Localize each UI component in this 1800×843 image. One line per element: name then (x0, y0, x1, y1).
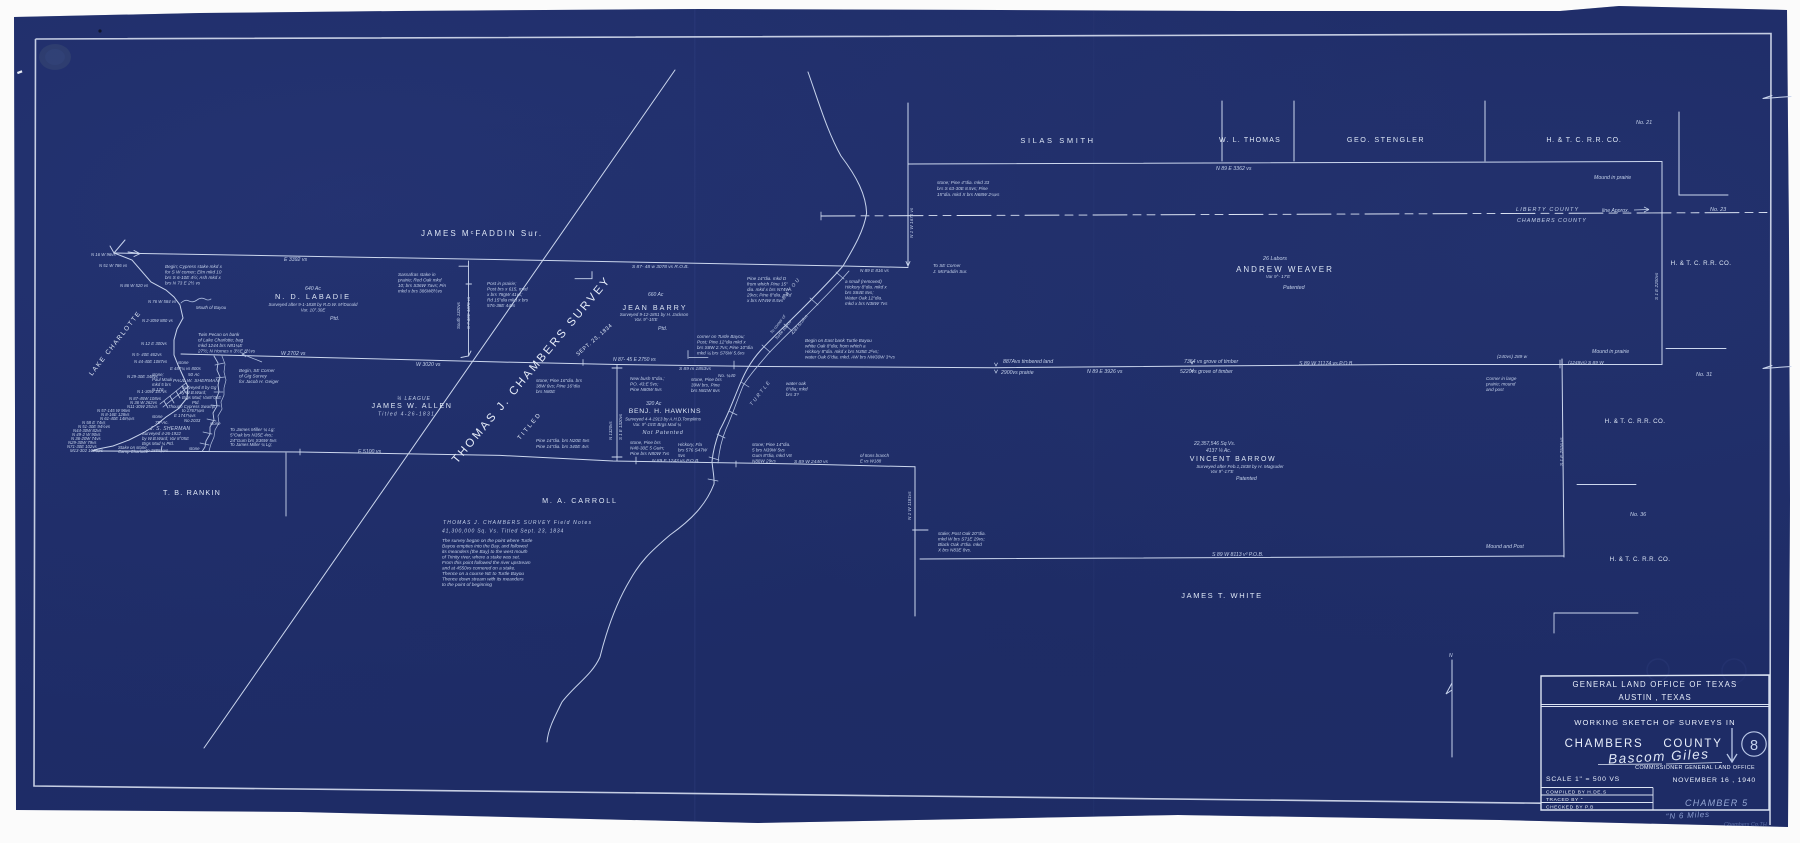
svg-text:N 76 W 584 vs: N 76 W 584 vs (148, 299, 177, 304)
svg-text:N 16 W 96vs: N 16 W 96vs (91, 252, 116, 257)
svg-text:N 86 W 520 vs: N 86 W 520 vs (120, 283, 149, 288)
svg-text:NOVEMBER 16 , 1940: NOVEMBER 16 , 1940 (1672, 777, 1756, 784)
svg-text:mkd x brs 386W8½vs: mkd x brs 386W8½vs (398, 288, 443, 294)
svg-text:41,300,000 Sq. Vs. Titled: 41,300,000 Sq. Vs. Titled Sept. 23, 1834 (442, 529, 564, 535)
svg-text:4137 ¼ Ac.: 4137 ¼ Ac. (1206, 448, 1231, 454)
svg-text:THOMAS J. CHAMBERS SURVEY: THOMAS J. CHAMBERS SURVEY Field Notes (443, 520, 592, 526)
svg-text:X brs N83E 8vs.: X brs N83E 8vs. (937, 548, 971, 553)
svg-text:CHAMBERS COUNTY: CHAMBERS COUNTY (1517, 218, 1587, 224)
svg-text:CHAMBERS: CHAMBERS (1565, 738, 1644, 750)
svg-text:M. A. CARROLL: M. A. CARROLL (542, 496, 618, 505)
svg-text:South 1320vs: South 1320vs (456, 301, 461, 329)
svg-text:of Lake Charlotte; bag: of Lake Charlotte; bag (198, 338, 244, 343)
svg-text:Twin Pecan on bank: Twin Pecan on bank (198, 332, 240, 337)
svg-text:W. L. THOMAS: W. L. THOMAS (1219, 137, 1281, 144)
svg-text:brs S 6-10E 4½; Ash mkd x: brs S 6-10E 4½; Ash mkd x (165, 274, 221, 280)
svg-text:N 5- 40E 462vs: N 5- 40E 462vs (132, 352, 162, 357)
svg-text:WORKING SKETCH OF SURVEYS: WORKING SKETCH OF SURVEYS IN (1574, 718, 1735, 727)
svg-text:water oak: water oak (786, 381, 807, 386)
svg-text:No. 36: No. 36 (1630, 512, 1647, 518)
svg-text:N.176: N.176 (152, 387, 164, 392)
svg-text:N. D. LABADIE: N. D. LABADIE (275, 292, 351, 301)
svg-text:of Itons branch: of Itons branch (860, 453, 890, 458)
svg-text:stone, Pine brs: stone, Pine brs (691, 377, 722, 382)
svg-text:Begin, SE Corner: Begin, SE Corner (239, 368, 275, 373)
svg-text:to the point of beginning: to the point of beginning (442, 582, 492, 587)
svg-text:E 487¼ vs 800s: E 487¼ vs 800s (170, 366, 202, 371)
svg-text:prairie; mound: prairie; mound (1485, 382, 1516, 387)
svg-text:Titled 4-26-1831: Titled 4-26-1831 (378, 412, 435, 418)
svg-text:Pine 14"dia. mkd D: Pine 14"dia. mkd D (747, 276, 787, 281)
svg-text:stone; Pine 4"dia. mkd 33: stone; Pine 4"dia. mkd 33 (937, 180, 990, 185)
svg-text:TRACED BY ": TRACED BY " (1546, 797, 1583, 803)
svg-text:(1248vs) S 89 W: (1248vs) S 89 W (1568, 360, 1604, 366)
svg-text:stone; Pine 16"dia. brs: stone; Pine 16"dia. brs (536, 378, 583, 383)
svg-text:S 1 E 2200vs: S 1 E 2200vs (1654, 272, 1659, 300)
svg-text:to 1885¼vs: to 1885¼vs (146, 448, 169, 453)
svg-text:Sassafras stake in: Sassafras stake in (398, 272, 436, 277)
svg-text:Chambers Co.TH: Chambers Co.TH (1724, 822, 1767, 828)
svg-text:To SE Corner: To SE Corner (933, 263, 961, 268)
svg-text:COMMISSIONER GENERAL LAND O: COMMISSIONER GENERAL LAND OFFICE (1635, 765, 1755, 771)
svg-text:7354 vs grove of timber: 7354 vs grove of timber (1184, 359, 1238, 365)
svg-text:E 5100 vs: E 5100 vs (358, 449, 381, 455)
svg-text:320 Ac: 320 Ac (646, 401, 662, 407)
svg-text:of Gig Survey: of Gig Survey (239, 374, 268, 379)
svg-text:for Jacob H. Geiger: for Jacob H. Geiger (239, 379, 279, 384)
svg-text:its meanders (the Bay) to the: its meanders (the Bay) to the west mouth (442, 549, 528, 554)
svg-text:LIBERTY COUNTY: LIBERTY COUNTY (1516, 207, 1579, 213)
svg-text:Black Oak 4"dia. mkd: Black Oak 4"dia. mkd (938, 542, 982, 547)
svg-text:GENERAL LAND OFFICE OF TEX: GENERAL LAND OFFICE OF TEXAS (1573, 680, 1738, 689)
svg-text:E vs W188: E vs W188 (860, 459, 882, 464)
svg-text:Patented: Patented (1283, 285, 1306, 291)
svg-text:T. B. RANKIN: T. B. RANKIN (163, 488, 221, 497)
svg-text:5 brs N39W 5vs: 5 brs N39W 5vs (752, 448, 785, 453)
svg-text:5vs: 5vs (678, 453, 686, 458)
svg-text:stone, Pine brs: stone, Pine brs (630, 440, 661, 445)
svg-text:Brgs Mad ¼ Ptd.: Brgs Mad ¼ Ptd. (142, 441, 174, 446)
svg-text:Water Oak 12"dia.: Water Oak 12"dia. (845, 296, 882, 301)
svg-text:for S W corner; Elm mkd 10: for S W corner; Elm mkd 10 (165, 270, 222, 275)
svg-text:JAMES T. WHITE: JAMES T. WHITE (1181, 591, 1262, 600)
svg-text:N88W 29vs: N88W 29vs (752, 459, 776, 464)
svg-text:Thence on a course NE to Turtl: Thence on a course NE to Turtle Bayou (442, 571, 524, 576)
svg-text:CHECKED BY P.B: CHECKED BY P.B (1546, 805, 1594, 811)
svg-text:15"dia. mkd X brs N68W 2¼vs: 15"dia. mkd X brs N68W 2¼vs (937, 192, 1000, 197)
svg-text:The survey began on the point: The survey began on the point where Turt… (442, 538, 533, 543)
svg-text:No 2033: No 2033 (184, 418, 201, 423)
svg-text:27½; N Homes x 3½E 8½vs: 27½; N Homes x 3½E 8½vs (197, 348, 256, 354)
svg-text:and post: and post (1486, 387, 1504, 392)
svg-text:Pine 14"dia. brs N20E 5vs: Pine 14"dia. brs N20E 5vs (536, 438, 590, 443)
svg-text:brs N81W 6vs: brs N81W 6vs (691, 388, 721, 393)
svg-text:brs S 63-30E 8.5vs; Pine: brs S 63-30E 8.5vs; Pine (937, 186, 988, 191)
svg-text:brs N 73 E 2½ vs: brs N 73 E 2½ vs (165, 280, 201, 286)
svg-text:JAMES W. ALLEN: JAMES W. ALLEN (371, 401, 452, 410)
svg-text:Not Patented: Not Patented (642, 430, 683, 436)
svg-text:N 1 W 1181vs: N 1 W 1181vs (907, 491, 912, 520)
svg-text:stone: stone (178, 360, 189, 365)
svg-text:Var. 10°.30E: Var. 10°.30E (301, 308, 326, 313)
svg-text:prairie; Red Oak mkd: prairie; Red Oak mkd (397, 278, 442, 283)
svg-text:N 87- 45 E 2750 vs: N 87- 45 E 2750 vs (613, 357, 656, 363)
svg-text:from which Pine 15": from which Pine 15" (747, 282, 788, 287)
svg-text:N: N (1449, 653, 1453, 659)
svg-text:N 51 W 786 vs: N 51 W 786 vs (99, 263, 128, 268)
svg-text:Brgs Mad; Var8°05E: Brgs Mad; Var8°05E (182, 395, 221, 400)
svg-text:Patented: Patented (1236, 476, 1258, 482)
svg-text:S 1 E 2516 vs: S 1 E 2516 vs (1559, 437, 1564, 466)
svg-text:Bayou empties into the Bay, an: Bayou empties into the Bay, and followed (442, 544, 528, 549)
svg-text:corner on Turtle Bayou;: corner on Turtle Bayou; (697, 334, 745, 339)
svg-text:M13-302 107¼vs: M13-302 107¼vs (70, 448, 104, 453)
svg-text:S 89 W 2440 vs: S 89 W 2440 vs (794, 459, 828, 465)
svg-text:Camp Charlotte: Camp Charlotte (118, 449, 149, 454)
svg-text:W 3020 vs: W 3020 vs (416, 362, 441, 368)
svg-text:SILAS SMITH: SILAS SMITH (1020, 136, 1095, 145)
svg-text:dia. mkd x brs N74W: dia. mkd x brs N74W (747, 287, 790, 292)
svg-text:Thence down stream with its me: Thence down stream with its meanders (442, 577, 524, 582)
svg-text:brs S84E 8vs;: brs S84E 8vs; (845, 290, 874, 295)
svg-text:stone; Pine 14"dia.: stone; Pine 14"dia. (752, 442, 790, 447)
svg-text:N 89 E 816 vs: N 89 E 816 vs (860, 268, 890, 273)
svg-text:Var 9°-17'E: Var 9°-17'E (1210, 469, 1234, 474)
svg-text:Surveyed 4-4-1913 by A.H.D.Tom: Surveyed 4-4-1913 by A.H.D.Tompkins (625, 417, 702, 422)
svg-text:x brs N74W 8.5vs: x brs N74W 8.5vs (746, 298, 784, 303)
svg-text:Pine brs N80W 7vs: Pine brs N80W 7vs (630, 451, 670, 456)
svg-text:Mound and Post: Mound and Post (1486, 544, 1524, 550)
svg-text:S 89 m 1853vs: S 89 m 1853vs (679, 366, 712, 372)
svg-text:and at 4550vs cornered on a st: and at 4550vs cornered on a stake. (442, 566, 516, 571)
svg-text:stake; Post Oak 20"dia.: stake; Post Oak 20"dia. (938, 531, 986, 536)
svg-text:Ptd.: Ptd. (658, 326, 667, 332)
svg-text:Post in prairie;: Post in prairie; (487, 281, 517, 286)
svg-text:50 Ac: 50 Ac (188, 372, 200, 377)
svg-text:stone: stone (189, 446, 200, 451)
svg-text:To James Miller ¼ Lg;: To James Miller ¼ Lg; (230, 442, 273, 447)
svg-text:Ptd.: Ptd. (330, 316, 339, 322)
svg-text:Hickory 8"dia. mkd x brs N35E: Hickory 8"dia. mkd x brs N35E 2⁶vs; (805, 349, 879, 354)
svg-text:PAUL W. SHERMAN: PAUL W. SHERMAN (173, 378, 219, 384)
svg-text:To James Miller ¼ Lg;: To James Miller ¼ Lg; (230, 427, 275, 432)
svg-text:H. & T. C. R.R. CO.: H. & T. C. R.R. CO. (1546, 137, 1621, 144)
svg-text:N 2-30W 880 vs: N 2-30W 880 vs (142, 318, 174, 323)
svg-text:of Trinity river, where a stak: of Trinity river, where a stake was set. (442, 555, 520, 560)
svg-text:E 3392 vs: E 3392 vs (284, 257, 307, 263)
svg-text:H. & T. C. R.R. CO.: H. & T. C. R.R. CO. (1671, 260, 1732, 267)
svg-text:GEO. STENGLER: GEO. STENGLER (1347, 135, 1425, 144)
svg-text:H. & T. C. R.R. CO.: H. & T. C. R.R. CO. (1605, 418, 1666, 425)
svg-text:water Oak 6"dia. mkd. AW brs N: water Oak 6"dia. mkd. AW brs NW30W 3⁴vs (805, 355, 896, 360)
svg-text:22,357,546 Sq.Vs.: 22,357,546 Sq.Vs. (1193, 441, 1235, 447)
svg-text:Mouth of Bayou: Mouth of Bayou (196, 305, 227, 310)
svg-text:N48-30E 5 Guin;: N48-30E 5 Guin; (630, 446, 665, 451)
svg-text:CHAMBER 5: CHAMBER 5 (1685, 798, 1748, 808)
svg-text:Mound in prairie: Mound in prairie (1592, 349, 1629, 355)
svg-text:S 89 W 8113 v³ P.O.B.: S 89 W 8113 v³ P.O.B. (1212, 552, 1263, 558)
svg-text:JEAN BARRY: JEAN BARRY (622, 303, 687, 312)
svg-text:Pine 14"dia. brs 340E 4vs: Pine 14"dia. brs 340E 4vs (536, 444, 589, 449)
svg-text:576-38E 44vs: 576-38E 44vs (487, 303, 516, 308)
svg-text:Gum 8"dia, mkd V8: Gum 8"dia, mkd V8 (752, 453, 792, 458)
svg-text:8"dia; mkd: 8"dia; mkd (786, 387, 808, 392)
svg-text:2900vs prairie: 2900vs prairie (1000, 370, 1034, 376)
svg-text:10; brs S36W 7avs; Pin: 10; brs S36W 7avs; Pin (398, 283, 446, 288)
svg-text:Mound in prairie: Mound in prairie (1594, 175, 1631, 181)
svg-text:39W brs, Pine: 39W brs, Pine (691, 383, 720, 388)
svg-text:Hickory 8"dia. mkd x: Hickory 8"dia. mkd x (845, 285, 887, 290)
svg-text:line Approx.: line Approx. (1602, 208, 1629, 214)
svg-text:stone: stone (210, 421, 221, 426)
svg-text:stone: stone (152, 414, 163, 419)
svg-text:COMPILED BY H.DE.S: COMPILED BY H.DE.S (1546, 790, 1607, 796)
svg-text:N11-30W 251vs: N11-30W 251vs (127, 404, 158, 409)
svg-text:S 87- 48 w 3078 vs R.O.B.: S 87- 48 w 3078 vs R.O.B. (632, 264, 689, 270)
svg-text:N 44-40E 1087vs: N 44-40E 1087vs (134, 359, 168, 364)
svg-text:JAMES McFADDIN Sur.: JAMES McFADDIN Sur. (421, 229, 543, 238)
svg-text:No. 23: No. 23 (1710, 207, 1727, 213)
svg-text:brs 3?: brs 3? (786, 392, 799, 397)
svg-text:brs 576 S47W: brs 576 S47W (678, 448, 708, 453)
svg-text:Var 9°- 17'E: Var 9°- 17'E (1266, 274, 1291, 279)
svg-text:white Oak 8"dia; from which a: white Oak 8"dia; from which a (805, 344, 866, 349)
svg-text:x brs 78gW 41vs;: x brs 78gW 41vs; (486, 292, 523, 297)
svg-text:ANDREW WEAVER: ANDREW WEAVER (1236, 265, 1334, 274)
svg-text:N 89 E 1243 vs P.O.B.: N 89 E 1243 vs P.O.B. (652, 458, 700, 464)
svg-text:mkd W brs S71E 29vs;: mkd W brs S71E 29vs; (938, 537, 985, 542)
svg-text:5220vs grove of timber: 5220vs grove of timber (1180, 369, 1233, 375)
svg-text:Post; Pine 12"dia mkd x: Post; Pine 12"dia mkd x (697, 340, 746, 345)
svg-text:38W 6vs; Pine 16"dia: 38W 6vs; Pine 16"dia (536, 384, 580, 389)
svg-text:Post brs x 615, mkd: Post brs x 615, mkd (487, 287, 528, 292)
svg-text:S 1 E 1320vs: S 1 E 1320vs (618, 413, 623, 440)
svg-text:26 Labors: 26 Labors (1262, 256, 1287, 262)
svg-text:75⁸Ac.: 75⁸Ac. (155, 420, 169, 425)
svg-text:BENJ. H. HAWKINS: BENJ. H. HAWKINS (629, 408, 702, 415)
svg-text:660 Ac: 660 Ac (648, 292, 664, 298)
svg-text:W 2702 vs: W 2702 vs (281, 351, 306, 357)
svg-text:8: 8 (1750, 738, 1758, 754)
svg-text:mkd 1244 brs N81¼E: mkd 1244 brs N81¼E (198, 343, 243, 348)
svg-text:N 89 E 3362 vs: N 89 E 3362 vs (1216, 166, 1252, 172)
svg-text:brs S8W 2.7vs; Pine 10"dia: brs S8W 2.7vs; Pine 10"dia (697, 345, 753, 350)
svg-text:SCALE 1" = 500 VS: SCALE 1" = 500 VS (1546, 776, 1620, 783)
svg-text:From this point followed the r: From this point followed the river upstr… (442, 560, 531, 565)
svg-text:Pine N80W 5vs: Pine N80W 5vs (630, 387, 662, 392)
svg-text:No. 31: No. 31 (1696, 372, 1712, 378)
svg-text:mkd ¼ brs S76W 5.6vs: mkd ¼ brs S76W 5.6vs (697, 351, 745, 356)
svg-text:brs N80E: brs N80E (536, 389, 556, 394)
svg-text:887Avs timbered land: 887Avs timbered land (1003, 359, 1054, 365)
svg-text:(240vs) 289 w: (240vs) 289 w (1497, 354, 1528, 360)
svg-text:Begin on East bank Turtle Bayo: Begin on East bank Turtle Bayou (805, 338, 872, 343)
svg-text:VINCENT BARROW: VINCENT BARROW (1190, 456, 1276, 463)
svg-text:J. McFaddin Sur.: J. McFaddin Sur. (932, 269, 968, 274)
svg-text:mkd x brs N38W 7vs: mkd x brs N38W 7vs (845, 301, 888, 306)
svg-text:S 7.30E 1370 vs: S 7.30E 1370 vs (466, 296, 471, 329)
svg-text:No. 21: No. 21 (1636, 120, 1652, 126)
svg-text:S 89 W 11174 vs P.O.B.: S 89 W 11174 vs P.O.B. (1299, 361, 1354, 367)
svg-text:H. & T. C. R.R. CO.: H. & T. C. R.R. CO. (1610, 556, 1671, 563)
svg-text:5"Oak brs N35E 4vs;: 5"Oak brs N35E 4vs; (230, 433, 273, 438)
svg-text:Rd 15"dia mkd x brs: Rd 15"dia mkd x brs (487, 298, 529, 303)
svg-text:Corner in large: Corner in large (1486, 376, 1517, 381)
svg-text:N 12 E 300vs: N 12 E 300vs (141, 341, 168, 346)
svg-text:N 1320vs: N 1320vs (608, 421, 613, 440)
svg-text:a small (removed): a small (removed) (845, 279, 882, 284)
svg-text:PO. 43:E 5vs;: PO. 43:E 5vs; (630, 382, 659, 387)
svg-text:Surveyed after 9-1-1838 by R.: Surveyed after 9-1-1838 by R.D.W. M⁰Dona… (269, 302, 359, 307)
svg-text:Hickory, Fla: Hickory, Fla (678, 442, 702, 447)
svg-text:AUSTIN , TEXAS: AUSTIN , TEXAS (1618, 693, 1691, 702)
svg-text:N 89 E 3926 vs: N 89 E 3926 vs (1087, 369, 1123, 375)
svg-text:Var. 9°-15'E Brgs Mad ¼: Var. 9°-15'E Brgs Mad ¼ (633, 422, 681, 427)
svg-text:New bush 5"dia.;: New bush 5"dia.; (630, 376, 665, 381)
svg-text:Var. 9°-15'E: Var. 9°-15'E (634, 317, 657, 322)
svg-text:N 1 W 1671 vs: N 1 W 1671 vs (909, 207, 914, 238)
svg-text:Begin; Cypress stake mkd x: Begin; Cypress stake mkd x (165, 264, 223, 269)
